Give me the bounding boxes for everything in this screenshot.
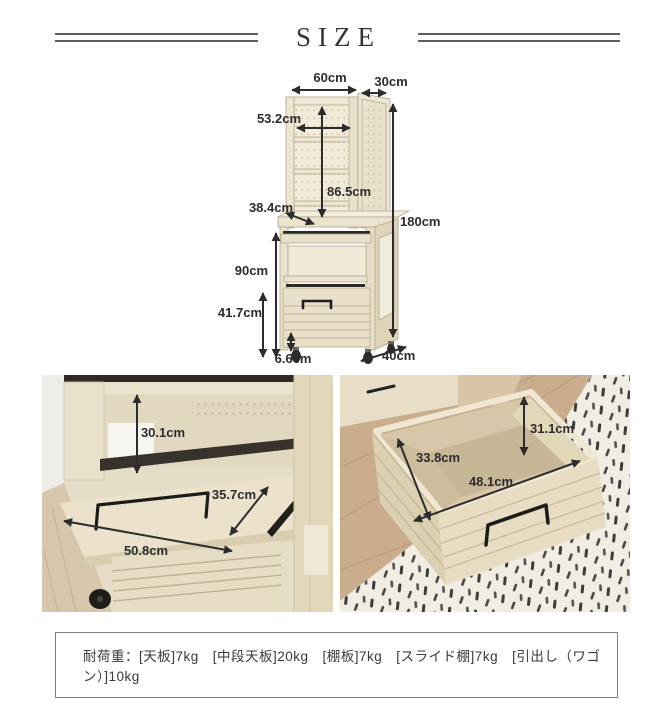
back-pegboard-row: [192, 399, 304, 417]
wagon-rail: [286, 284, 365, 287]
label-top-depth: 30cm: [374, 74, 407, 89]
load-capacity-box: 耐荷重：[天板]7kg [中段天板]20kg [棚板]7kg [スライド棚]7k…: [55, 632, 618, 698]
label-inner-height: 31.1cm: [530, 421, 574, 436]
photo-slide-shelf: 30.1cm 35.7cm 50.8cm: [42, 375, 333, 612]
wagon-box-scene: [340, 375, 630, 612]
label-inner-depth: 33.8cm: [416, 450, 460, 465]
header-rule-right: [418, 33, 620, 42]
wall: [42, 375, 64, 493]
label-wagon-height: 41.7cm: [218, 305, 262, 320]
label-open-height: 30.1cm: [141, 425, 185, 440]
caster-hub: [97, 596, 103, 602]
right-side-frame: [294, 375, 333, 612]
label-inner-width: 48.1cm: [469, 474, 513, 489]
size-diagram: 60cm 30cm 53.2cm 86.5cm 38.4cm 180cm 90c…: [0, 60, 670, 370]
middle-compartment: [288, 246, 366, 276]
size-section: SIZE: [0, 0, 670, 705]
open-door-pegboard: [363, 106, 385, 219]
top-rail: [64, 375, 310, 382]
cabinet-illustration: [278, 93, 409, 364]
label-slide-depth: 35.7cm: [212, 487, 256, 502]
slide-shelf-scene: [42, 375, 333, 612]
side-panel-window: [379, 232, 394, 320]
label-caster-height: 6.6cm: [275, 351, 312, 366]
label-hutch-height: 86.5cm: [327, 184, 371, 199]
label-total-height: 180cm: [400, 214, 440, 229]
hutch-right-stile: [349, 97, 358, 228]
hutch-top-board: [286, 97, 358, 105]
label-lower-height: 90cm: [235, 263, 268, 278]
label-base-depth: 40cm: [382, 348, 415, 363]
desk-top-surface: [278, 211, 409, 217]
label-shelf-depth: 38.4cm: [249, 200, 293, 215]
middle-shelf-board: [284, 276, 367, 282]
slide-tray: [281, 234, 371, 243]
label-slide-width: 50.8cm: [124, 543, 168, 558]
slide-tray-rail: [283, 231, 370, 234]
label-top-width: 60cm: [313, 70, 346, 85]
label-inner-width: 53.2cm: [257, 111, 301, 126]
right-frame-window: [304, 525, 328, 575]
photo-wagon-box: 31.1cm 33.8cm 48.1cm: [340, 375, 630, 612]
load-capacity-text: 耐荷重：[天板]7kg [中段天板]20kg [棚板]7kg [スライド棚]7k…: [56, 645, 617, 685]
left-post: [64, 382, 104, 480]
